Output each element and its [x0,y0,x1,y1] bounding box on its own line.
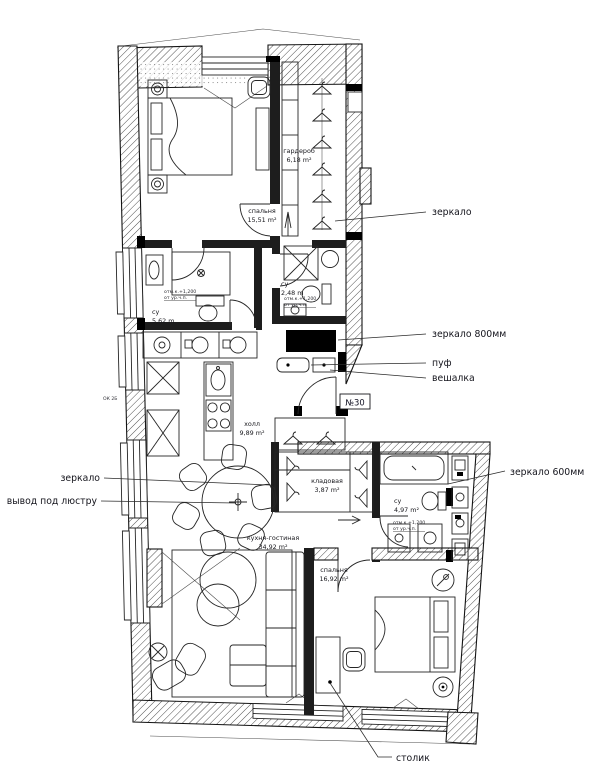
window-left-1 [116,248,143,318]
room-label-wardrobe-area: 6,18 m² [286,156,311,164]
callout-mirror-left: зеркало [60,473,100,484]
elev-note-2-line1: отм.к.+1,200 [284,296,316,302]
callout-pouf: пуф [432,358,452,369]
pouf [277,358,309,372]
fixture-column [452,456,468,560]
sink2 [322,251,339,268]
toilet1-cistern [196,296,224,306]
bedroom2-room [316,569,455,697]
toilet3 [422,492,438,510]
room-label-bedroom2-name: спальня [320,566,348,574]
room-label-bath3-area: 4,97 m² [394,506,419,514]
entry-zone [277,330,336,372]
window-bottom-bedroom [362,699,448,727]
callout-chandelier-outlet: вывод под люстру [7,496,98,507]
room-label-hall-area: 9,89 m² [239,429,264,437]
callout-side-table: столик [396,753,430,764]
bed1 [148,98,232,175]
blanket-line [169,98,186,175]
room-label-hall-name: холл [244,420,260,428]
floor-plan-page: спальня 15,51 m² гардероб 6,18 m² су 5,6… [0,0,600,775]
kitchen-sink [206,364,231,396]
coffee-table-large [200,552,256,608]
kitchen [143,332,257,460]
floor-plan-drawing: спальня 15,51 m² гардероб 6,18 m² су 5,6… [0,0,600,775]
room-label-living-name: кухня-гостиная [247,534,300,542]
callout-mirror-600: зеркало 600мм [510,467,584,478]
armchair-1 [172,640,209,678]
room-label-bedroom1-name: спальня [248,207,276,215]
room-label-wardrobe-name: гардероб [283,147,315,155]
room-label-bath1-name: су [152,308,160,316]
chandelier-point [229,493,247,511]
ceiling-fixture-1 [432,569,454,591]
floor-lamp [149,643,167,661]
room-label-storage-name: кладовая [311,477,343,485]
room-label-storage-area: 3,87 m² [314,486,339,494]
ottoman [230,645,266,686]
room-label-bath2-name: су [281,280,289,288]
room-label-bath2-area: 2,48 m [281,289,304,297]
window-left-2 [118,333,145,390]
coffee-table-small [197,584,239,626]
callout-hanger-rack: вешалка [432,373,475,384]
laundry-row [143,332,257,358]
storage-room [275,418,373,512]
stove [206,400,231,431]
room-label-bath3-name: су [394,497,402,505]
unit-number-text: №30 [345,398,364,408]
window-mark-label: ОК 2Б [103,396,117,402]
elev-note-3-line1: отм.к.+1,200 [393,520,425,526]
toilet1 [199,305,217,321]
elev-note-1-line1: отм.к.+1,200 [164,289,196,295]
bed2 [375,597,455,672]
ceiling-fixture-2 [433,677,453,697]
side-table [316,637,340,693]
mirror-800-cabinet [286,330,336,352]
room-label-bedroom1-area: 15,51 m² [247,216,277,224]
window-left-4 [122,528,150,623]
room-label-living-area: 34,92 m² [258,543,288,551]
sofa [266,552,304,697]
callout-mirror-right: зеркало [432,207,472,218]
bedroom1 [148,77,270,193]
callout-mirror-800: зеркало 800мм [432,329,506,340]
parapet-line [122,29,360,46]
armchair-2 [149,657,189,694]
window-bottom-living [253,694,343,721]
counter [204,362,233,460]
dresser [256,108,269,170]
room-label-bath1-area: 5,62 m [152,317,175,325]
room-label-bedroom2-area: 16,92 m² [319,575,349,583]
tv-unit [147,549,162,607]
unit-number-tag: №30 [340,394,370,409]
living-room [147,443,304,697]
